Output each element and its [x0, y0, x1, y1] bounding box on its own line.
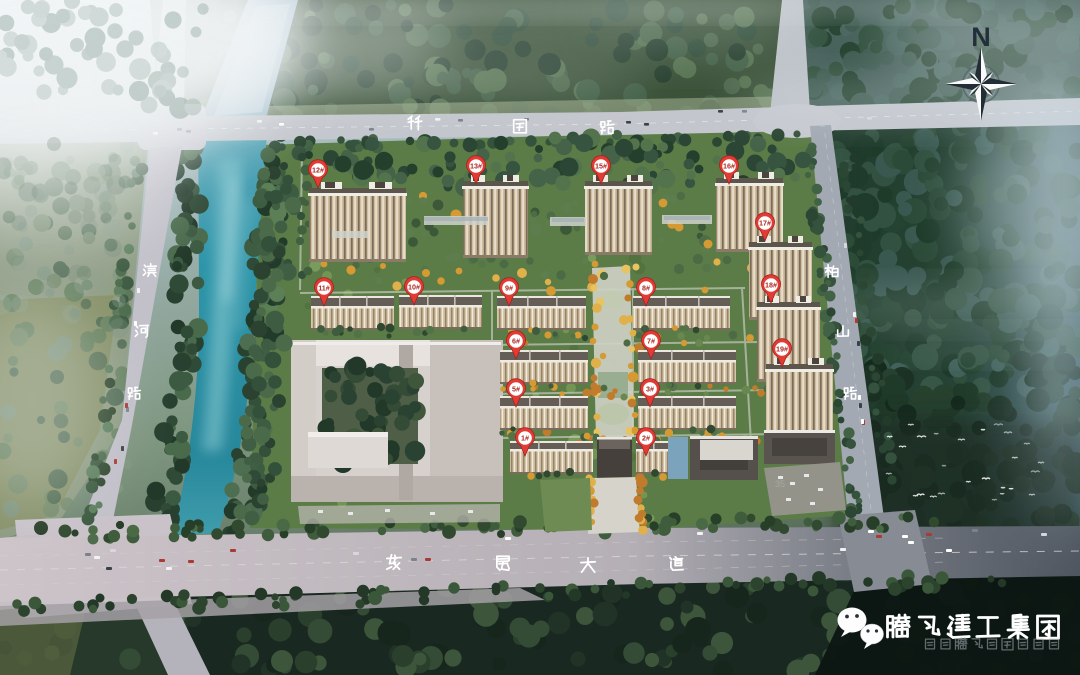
svg-text:8#: 8# — [642, 284, 650, 293]
svg-text:18#: 18# — [765, 281, 777, 290]
svg-text:15#: 15# — [595, 162, 607, 171]
svg-text:N: N — [971, 22, 991, 52]
svg-text:19#: 19# — [776, 345, 788, 354]
svg-text:9#: 9# — [505, 284, 513, 293]
svg-text:5#: 5# — [512, 385, 520, 394]
svg-text:35: 35 — [775, 479, 785, 489]
svg-text:17#: 17# — [759, 219, 771, 228]
svg-text:13#: 13# — [470, 162, 482, 171]
svg-text:1#: 1# — [521, 434, 529, 443]
svg-text:12#: 12# — [312, 166, 324, 175]
svg-text:10#: 10# — [408, 283, 420, 292]
svg-text:7#: 7# — [647, 337, 655, 346]
svg-text:3#: 3# — [646, 385, 654, 394]
svg-text:16#: 16# — [723, 162, 735, 171]
svg-text:2#: 2# — [642, 434, 650, 443]
svg-text:11#: 11# — [318, 284, 330, 293]
svg-text:6#: 6# — [512, 337, 520, 346]
